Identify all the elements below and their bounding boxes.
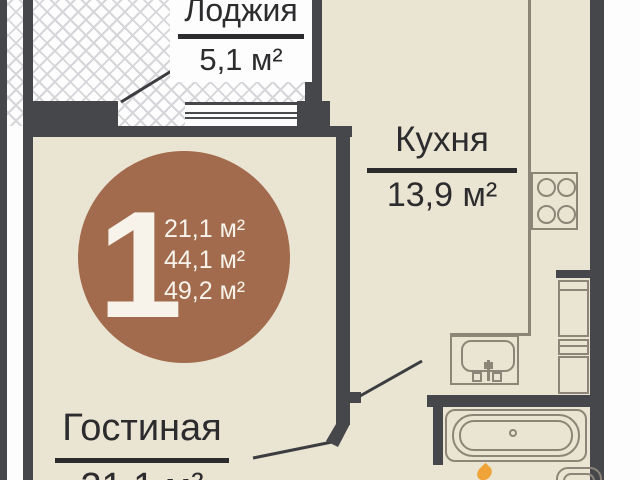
- cabinet-icon: [558, 356, 589, 394]
- kitchen-name: Кухня: [356, 122, 528, 159]
- living-area: 21,1 м²: [42, 468, 242, 480]
- bathtub-drain: [509, 429, 517, 437]
- burner: [537, 178, 556, 197]
- living-name: Гостиная: [42, 409, 242, 449]
- burner: [537, 205, 556, 224]
- kitchen-area: 13,9 м²: [356, 178, 528, 214]
- fridge-line: [560, 289, 587, 291]
- floor-plan: Лоджия 5,1 м² Кухня 13,9 м² Гостиная 21,…: [0, 0, 640, 480]
- tap-handle-left: [472, 372, 482, 382]
- kitchen-label: Кухня 13,9 м²: [356, 122, 528, 213]
- door-swing-entry: [253, 442, 332, 458]
- shelf-line: [560, 345, 587, 347]
- living-underline: [55, 458, 229, 463]
- fridge-icon: [558, 280, 589, 337]
- loggia-label: Лоджия 5,1 м²: [170, 0, 312, 82]
- loggia-name: Лоджия: [170, 0, 312, 28]
- burner: [557, 205, 576, 224]
- stove-4-burner-icon: [531, 172, 578, 230]
- apartment-areas: 21,1 м² 44,1 м² 49,2 м²: [164, 214, 245, 307]
- living-label: Гостиная 21,1 м²: [42, 409, 242, 480]
- apartment-badge: 1 21,1 м² 44,1 м² 49,2 м²: [78, 151, 290, 363]
- kitchen-counter-line-vertical: [528, 0, 531, 336]
- kitchen-underline: [367, 168, 517, 173]
- loggia-underline: [178, 34, 304, 39]
- tap-head: [484, 362, 493, 369]
- burner: [557, 178, 576, 197]
- tap-handle-right: [492, 372, 502, 382]
- cabinet-shelf-icon: [558, 339, 589, 355]
- toilet-inner: [563, 473, 595, 480]
- door-swing-kitchen: [360, 361, 422, 396]
- loggia-area: 5,1 м²: [170, 44, 312, 77]
